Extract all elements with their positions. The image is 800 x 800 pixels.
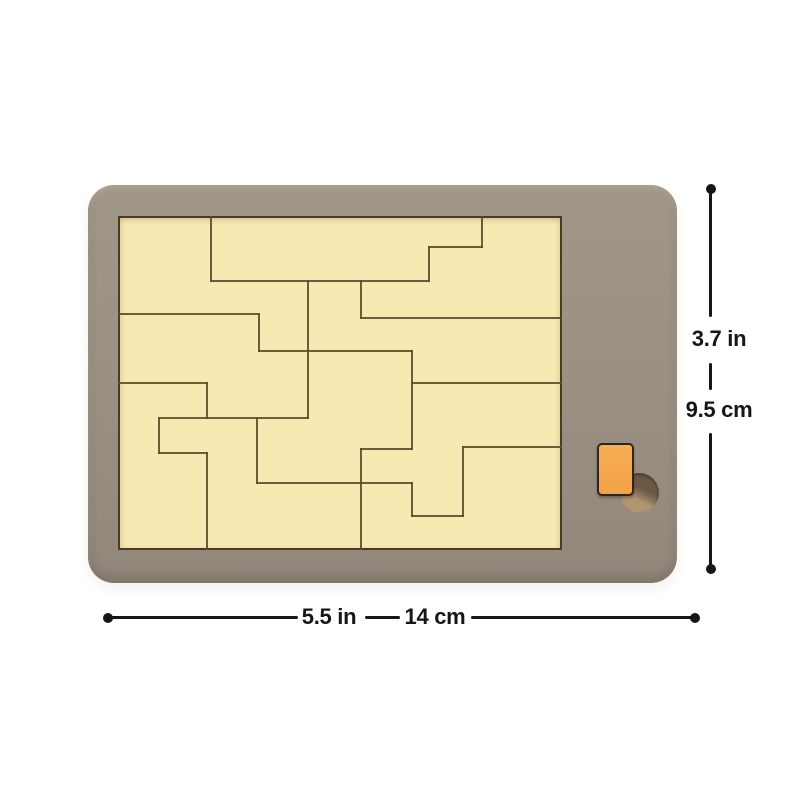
- width-dim-line-left: [107, 616, 298, 619]
- height-dim-line-lower: [709, 433, 712, 568]
- product-image: 3.7 in 9.5 cm 5.5 in 14 cm: [0, 0, 800, 800]
- width-inches-label: 5.5 in: [302, 604, 356, 630]
- puzzle-tray: [88, 185, 677, 583]
- width-dim-line-middle: [365, 616, 400, 619]
- height-dim-bottom-dot: [706, 564, 716, 574]
- puzzle-board: [118, 216, 562, 550]
- puzzle-piece-borders: [118, 216, 562, 550]
- height-dim-line-upper: [709, 188, 712, 317]
- height-centimeters-label: 9.5 cm: [686, 397, 753, 423]
- height-inches-label: 3.7 in: [692, 326, 746, 352]
- height-dim-line-middle: [709, 363, 712, 390]
- width-centimeters-label: 14 cm: [405, 604, 466, 630]
- width-dim-line-right: [471, 616, 694, 619]
- accent-puzzle-piece: [597, 443, 634, 496]
- width-dim-right-dot: [690, 613, 700, 623]
